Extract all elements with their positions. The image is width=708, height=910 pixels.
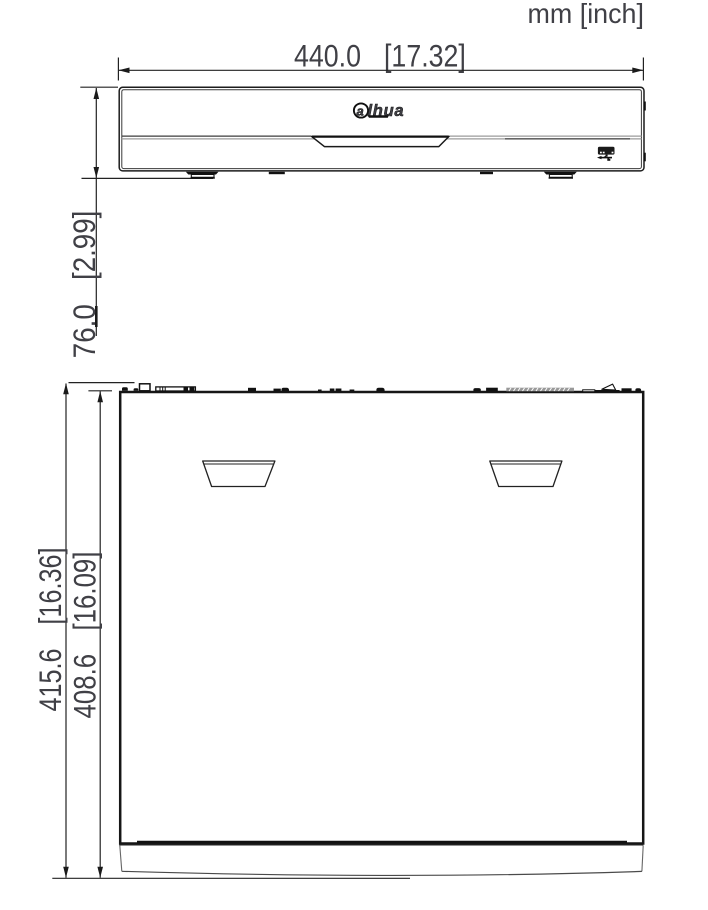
svg-text:[16.36]: [16.36] [33,547,68,624]
svg-text:408.6: 408.6 [68,654,103,719]
svg-text:440.0: 440.0 [294,39,361,73]
svg-text:[17.32]: [17.32] [384,39,466,73]
svg-text:a: a [357,104,364,119]
svg-text:[16.09]: [16.09] [68,552,103,631]
svg-text:76.0: 76.0 [67,304,102,358]
svg-text:mm [inch]: mm [inch] [528,0,644,29]
svg-text:[2.99]: [2.99] [67,211,102,280]
svg-text:415.6: 415.6 [33,648,68,711]
